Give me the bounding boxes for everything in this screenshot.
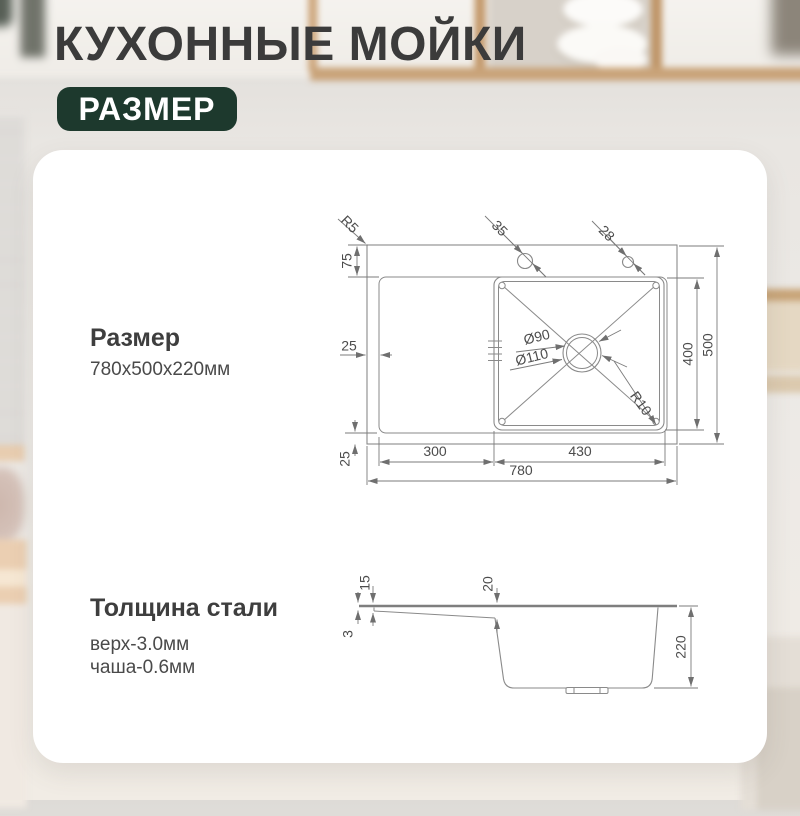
window-sill xyxy=(0,445,25,461)
size-section-title: Размер xyxy=(90,324,180,353)
size-badge: РАЗМЕР xyxy=(57,87,237,131)
fruit-bowl-blur xyxy=(0,467,25,542)
size-badge-label: РАЗМЕР xyxy=(78,91,215,128)
page-title: КУХОННЫЕ МОЙКИ xyxy=(54,20,527,70)
thickness-values: верх-3.0мм чаша-0.6мм xyxy=(90,633,195,679)
lower-cabinet xyxy=(0,604,27,808)
dark-cabinet-edge xyxy=(21,0,45,57)
infographic-page: { "header": { "title": "КУХОННЫЕ МОЙКИ",… xyxy=(0,0,800,800)
wood-frame xyxy=(651,0,662,74)
size-value: 780x500x220мм xyxy=(90,358,230,381)
dark-corner-decor xyxy=(0,0,12,27)
window-blinds xyxy=(0,114,25,459)
thickness-top-value: верх-3.0мм xyxy=(90,633,195,656)
wood-counter-highlight xyxy=(0,569,27,586)
thickness-section-title: Толщина стали xyxy=(90,594,278,623)
dark-corner-decor xyxy=(771,0,800,55)
thickness-bowl-value: чаша-0.6мм xyxy=(90,656,195,679)
